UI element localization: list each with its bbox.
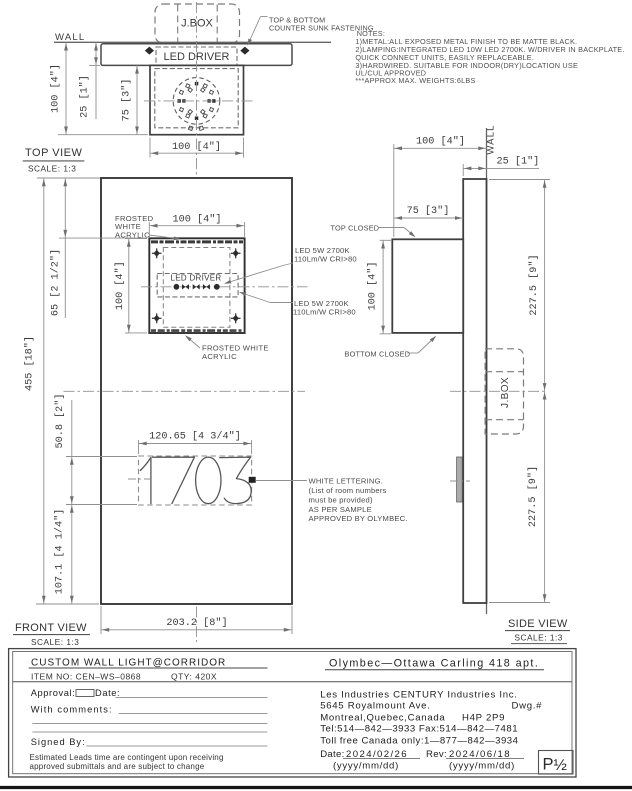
svg-text:75 [3"]: 75 [3"] (121, 79, 133, 122)
svg-text:455 [18"]: 455 [18"] (24, 336, 36, 391)
svg-text:(List of room numbers: (List of room numbers (309, 486, 387, 495)
svg-text:100 [4"]: 100 [4"] (50, 64, 62, 113)
svg-text:25 [1"]: 25 [1"] (497, 156, 540, 168)
svg-text:½: ½ (554, 757, 567, 774)
svg-text:75 [3"]: 75 [3"] (407, 205, 450, 217)
svg-text:Rev:: Rev: (426, 749, 447, 760)
svg-text:WHITE LETTERING.: WHITE LETTERING. (309, 477, 384, 486)
svg-text:J.BOX: J.BOX (500, 377, 511, 408)
svg-text:SCALE: 1:3: SCALE: 1:3 (28, 164, 76, 174)
svg-text:Date:: Date: (95, 688, 120, 698)
svg-text:Approval:: Approval: (31, 688, 76, 698)
svg-text:H4P 2P9: H4P 2P9 (462, 713, 505, 724)
svg-text:5645 Royalmount Ave.: 5645 Royalmount Ave. (320, 701, 430, 712)
svg-text:100 [4"]: 100 [4"] (114, 261, 126, 310)
svg-text:***APPROX MAX. WEIGHTS:6LBS: ***APPROX MAX. WEIGHTS:6LBS (355, 76, 475, 85)
svg-text:Montreal,Quebec,Canada: Montreal,Quebec,Canada (320, 713, 445, 724)
svg-text:110Lm/W CRI>80: 110Lm/W CRI>80 (293, 308, 356, 317)
svg-text:SCALE: 1:3: SCALE: 1:3 (31, 637, 79, 647)
svg-text:65 [2 1/2"]: 65 [2 1/2"] (50, 249, 62, 316)
svg-text:WALL: WALL (55, 32, 85, 43)
svg-text:SCALE: 1:3: SCALE: 1:3 (515, 633, 563, 643)
svg-text:Signed By:: Signed By: (31, 737, 86, 747)
svg-text:AS PER SAMPLE: AS PER SAMPLE (309, 505, 372, 514)
svg-text:100 [4"]: 100 [4"] (173, 213, 222, 225)
svg-text:Tel:514—842—3933 Fax:514—842—7: Tel:514—842—3933 Fax:514—842—7481 (320, 724, 518, 735)
svg-text:120.65 [4 3/4"]: 120.65 [4 3/4"] (149, 431, 241, 443)
svg-text:P: P (543, 756, 554, 774)
svg-text:BOTTOM CLOSED: BOTTOM CLOSED (345, 350, 411, 359)
svg-text:ITEM NO: CEN–WS–0868: ITEM NO: CEN–WS–0868 (31, 672, 141, 682)
svg-text:203.2 [8"]: 203.2 [8"] (166, 617, 227, 629)
svg-text:must be provided): must be provided) (309, 496, 373, 505)
svg-text:25 [1"]: 25 [1"] (79, 75, 91, 118)
svg-text:100 [4"]: 100 [4"] (172, 141, 221, 153)
svg-text:WALL: WALL (486, 124, 497, 154)
svg-text:TOP CLOSED: TOP CLOSED (331, 224, 380, 233)
svg-text:110Lm/W CRI>80: 110Lm/W CRI>80 (294, 255, 357, 264)
svg-text:FRONT VIEW: FRONT VIEW (15, 622, 87, 634)
svg-text:(yyyy/mm/dd): (yyyy/mm/dd) (449, 761, 515, 772)
svg-text:ACRYLIC: ACRYLIC (202, 352, 237, 361)
svg-text:Estimated Leads time are conti: Estimated Leads time are contingent upon… (30, 753, 224, 762)
svg-text:CUSTOM WALL LIGHT@CORRIDOR: CUSTOM WALL LIGHT@CORRIDOR (31, 658, 226, 669)
svg-text:Olymbec—Ottawa Carling 418 apt: Olymbec—Ottawa Carling 418 apt. (329, 658, 539, 670)
svg-text:Toll free Canada only:1—877—84: Toll free Canada only:1—877—842—3934 (320, 736, 518, 747)
svg-text:Les Industries CENTURY Industr: Les Industries CENTURY Industries Inc. (320, 690, 517, 701)
svg-text:APPROVED BY OLYMBEC.: APPROVED BY OLYMBEC. (309, 514, 408, 523)
svg-text:With comments:: With comments: (31, 705, 113, 715)
svg-text:TOP VIEW: TOP VIEW (25, 147, 83, 159)
svg-text:107.1 [4 1/4"]: 107.1 [4 1/4"] (54, 509, 66, 595)
svg-text:100 [4"]: 100 [4"] (367, 262, 379, 311)
svg-text:Dwg.#: Dwg.# (512, 701, 543, 712)
svg-text:(yyyy/mm/dd): (yyyy/mm/dd) (333, 761, 399, 772)
svg-text:227.5 [9"]: 227.5 [9"] (528, 254, 540, 315)
svg-text:SIDE VIEW: SIDE VIEW (508, 618, 568, 630)
svg-text:227.5 [9"]: 227.5 [9"] (527, 466, 539, 527)
svg-text:approved submittals and are su: approved submittals and are subject to c… (30, 762, 205, 771)
svg-text:Date:: Date: (320, 749, 344, 760)
svg-text:J.BOX: J.BOX (181, 18, 213, 30)
svg-text:50.8 [2"]: 50.8 [2"] (54, 393, 66, 448)
svg-text:100 [4"]: 100 [4"] (416, 136, 465, 148)
svg-text:QTY: 420X: QTY: 420X (171, 672, 217, 682)
svg-text:LED DRIVER: LED DRIVER (170, 274, 221, 283)
